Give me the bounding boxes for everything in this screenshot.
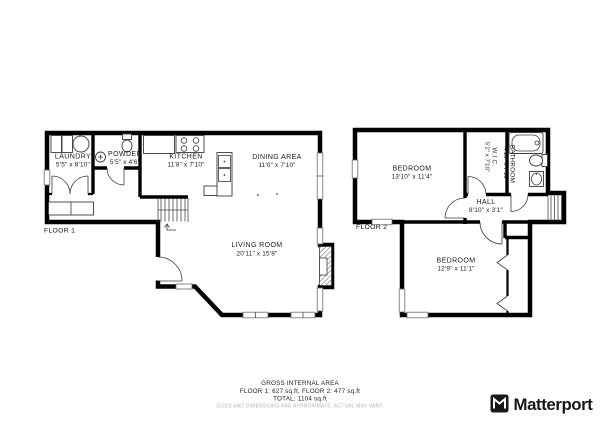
ceiling-fixture-dot	[276, 193, 278, 195]
room-dims-kitchen: 11'8" x 7'10"	[167, 162, 204, 169]
floor2-plan: BEDROOM 13'10" x 11'4" W.I.C. 5'2" x 7'1…	[352, 130, 564, 318]
toilet-bowl-icon	[530, 155, 543, 166]
room-label-laundry: LAUNDRY	[55, 154, 91, 161]
room-label-wic: W.I.C.	[491, 148, 498, 167]
footer-area-summary: GROSS INTERNAL AREA FLOOR 1: 627 sq.ft, …	[216, 380, 383, 410]
bedroom1-door-opening	[462, 199, 468, 218]
room-label-hall: HALL	[476, 199, 495, 206]
dryer-icon	[62, 136, 73, 153]
room-dims-hall: 8'10" x 3'1"	[469, 207, 503, 214]
floor1-plan: LAUNDRY 5'5" x 8'10" POWDER 5'5" x 4'6" …	[44, 133, 332, 318]
room-dims-laundry: 5'5" x 8'10"	[56, 162, 90, 169]
floor-plan-svg: LAUNDRY 5'5" x 8'10" POWDER 5'5" x 4'6" …	[0, 0, 600, 424]
floor1-label: FLOOR 1	[44, 228, 75, 235]
room-dims-dining: 11'0" x 7'10"	[258, 162, 295, 169]
matterport-logo: Matterport	[491, 395, 594, 415]
toilet-tank-icon	[123, 134, 132, 140]
stove-icon	[176, 136, 204, 153]
room-dims-bathroom: 4'10" x 7'10"	[502, 147, 508, 181]
footer-total: TOTAL: 1104 sq.ft	[273, 395, 327, 402]
matterport-logo-text: Matterport	[514, 395, 594, 414]
room-label-bathroom: BATHROOM	[509, 145, 516, 183]
fireplace	[320, 247, 332, 286]
room-label-living: LIVING ROOM	[231, 242, 282, 249]
footer-areas: FLOOR 1: 627 sq.ft, FLOOR 2: 477 sq.ft	[240, 388, 360, 395]
room-label-bedroom1: BEDROOM	[393, 166, 432, 173]
room-dims-living: 20'11" x 15'8"	[237, 251, 278, 258]
kitchen-counter	[144, 136, 175, 154]
front-door-opening	[155, 257, 161, 281]
floor2-label: FLOOR 2	[356, 224, 387, 231]
ceiling-fixture-dot	[257, 194, 259, 196]
room-dims-wic: 5'2" x 7'10"	[484, 142, 490, 172]
room-dims-powder: 5'5" x 4'6"	[110, 159, 140, 166]
room-label-kitchen: KITCHEN	[169, 154, 203, 161]
laundry-sink-icon	[73, 136, 89, 152]
footer-disclaimer: SIZES AND DIMENSIONS ARE APPROXIMATE, AC…	[216, 404, 383, 410]
room-dims-bedroom1: 13'10" x 11'4"	[392, 174, 433, 181]
room-label-bedroom2: BEDROOM	[437, 258, 476, 265]
room-label-dining: DINING AREA	[252, 154, 302, 161]
room-dims-bedroom2: 12'9" x 11'1"	[437, 266, 474, 273]
washer-icon	[51, 136, 62, 153]
floor-plan-page: LAUNDRY 5'5" x 8'10" POWDER 5'5" x 4'6" …	[0, 0, 600, 424]
room-label-powder: POWDER	[108, 151, 142, 158]
footer-title: GROSS INTERNAL AREA	[261, 380, 339, 387]
